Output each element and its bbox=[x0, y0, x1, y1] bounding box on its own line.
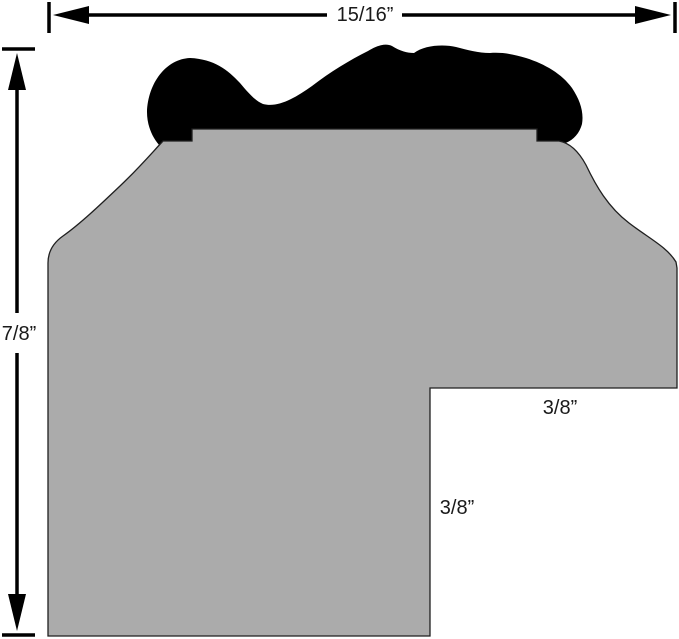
diagram-canvas: 15/16” 7/8” 3/8” 3/8” bbox=[0, 0, 679, 639]
width-arrow-left-icon bbox=[53, 6, 89, 24]
moulding-profile-diagram bbox=[0, 0, 679, 639]
height-arrow-up-icon bbox=[8, 53, 26, 90]
rabbet-depth-dimension-label: 3/8” bbox=[437, 497, 477, 519]
width-arrow-right-icon bbox=[635, 6, 671, 24]
rabbet-width-dimension-label: 3/8” bbox=[540, 397, 580, 419]
overall-height-dimension-label: 7/8” bbox=[0, 323, 39, 345]
moulding-body-shape bbox=[48, 129, 677, 636]
height-arrow-down-icon bbox=[8, 594, 26, 631]
overall-width-dimension-label: 15/16” bbox=[334, 4, 397, 26]
